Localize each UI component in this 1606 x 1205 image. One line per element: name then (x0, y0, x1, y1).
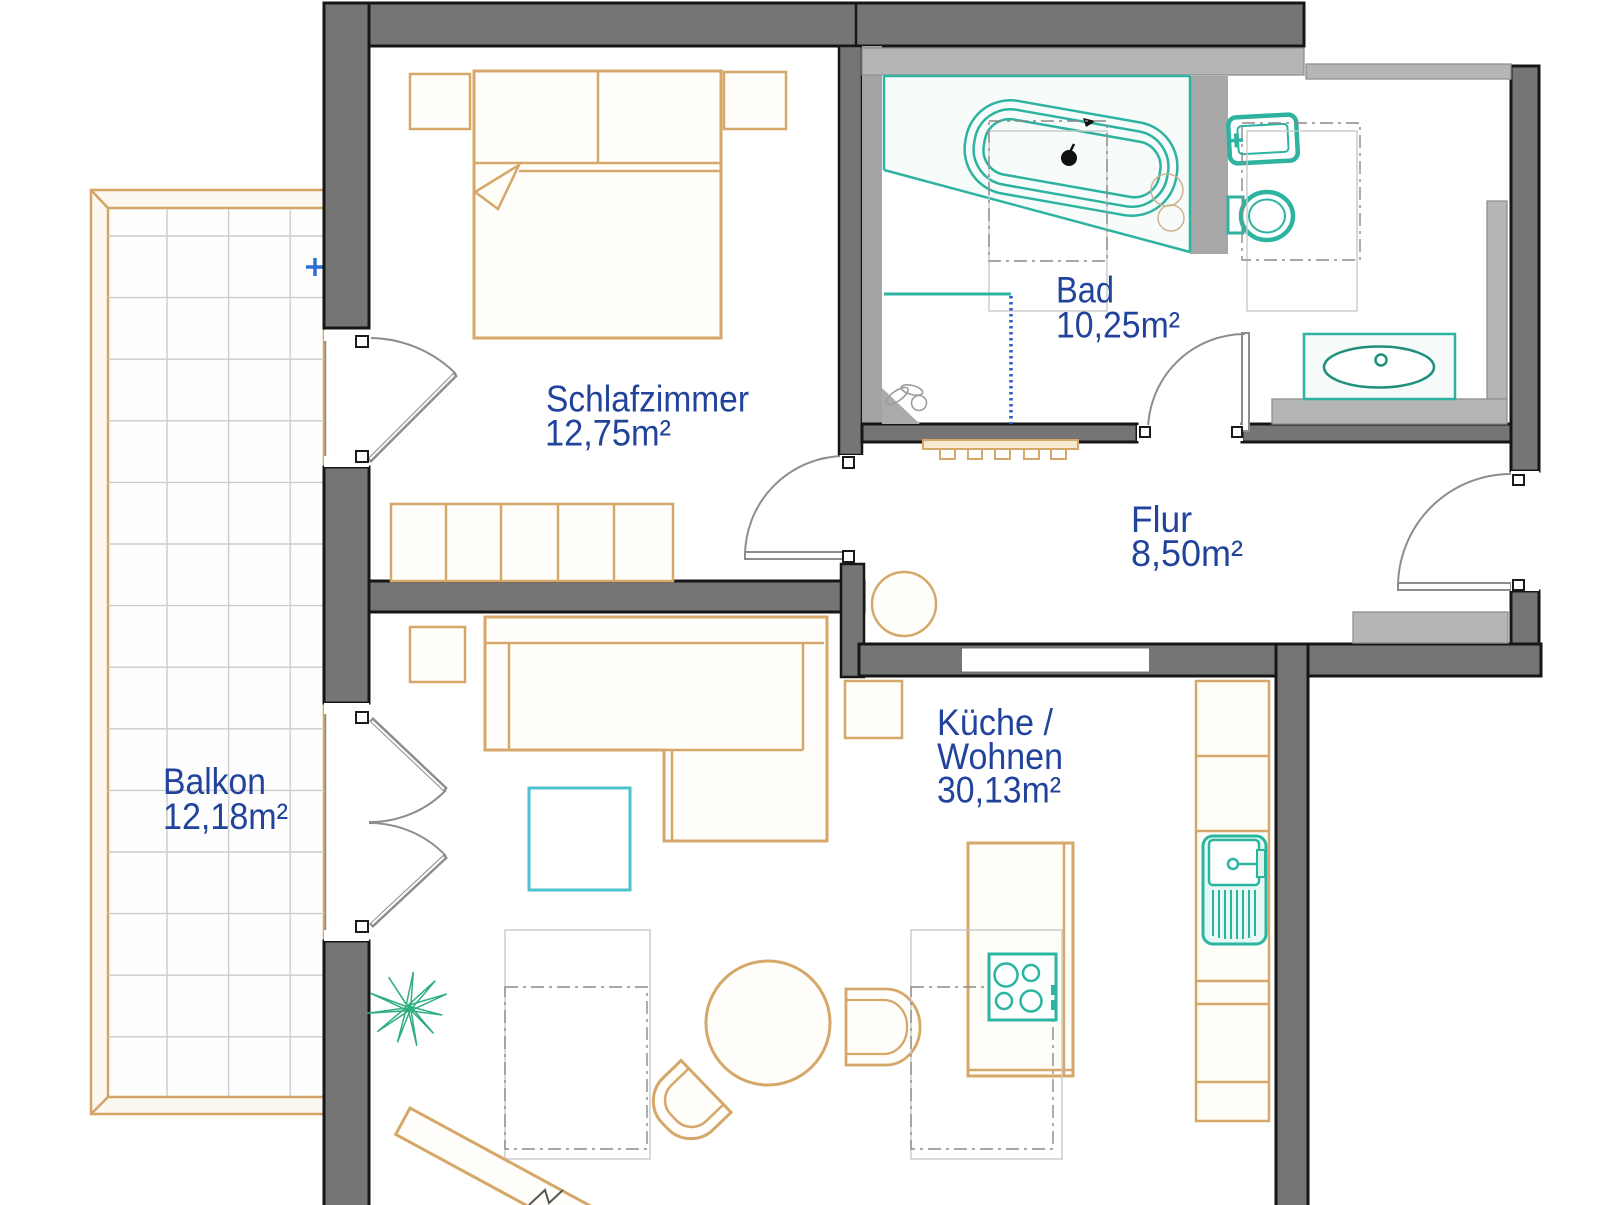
svg-text:12,18m²: 12,18m² (163, 796, 288, 837)
svg-text:10,25m²: 10,25m² (1056, 305, 1180, 346)
svg-text:30,13m²: 30,13m² (937, 770, 1061, 811)
svg-text:8,50m²: 8,50m² (1131, 533, 1243, 574)
svg-text:12,75m²: 12,75m² (545, 413, 671, 454)
